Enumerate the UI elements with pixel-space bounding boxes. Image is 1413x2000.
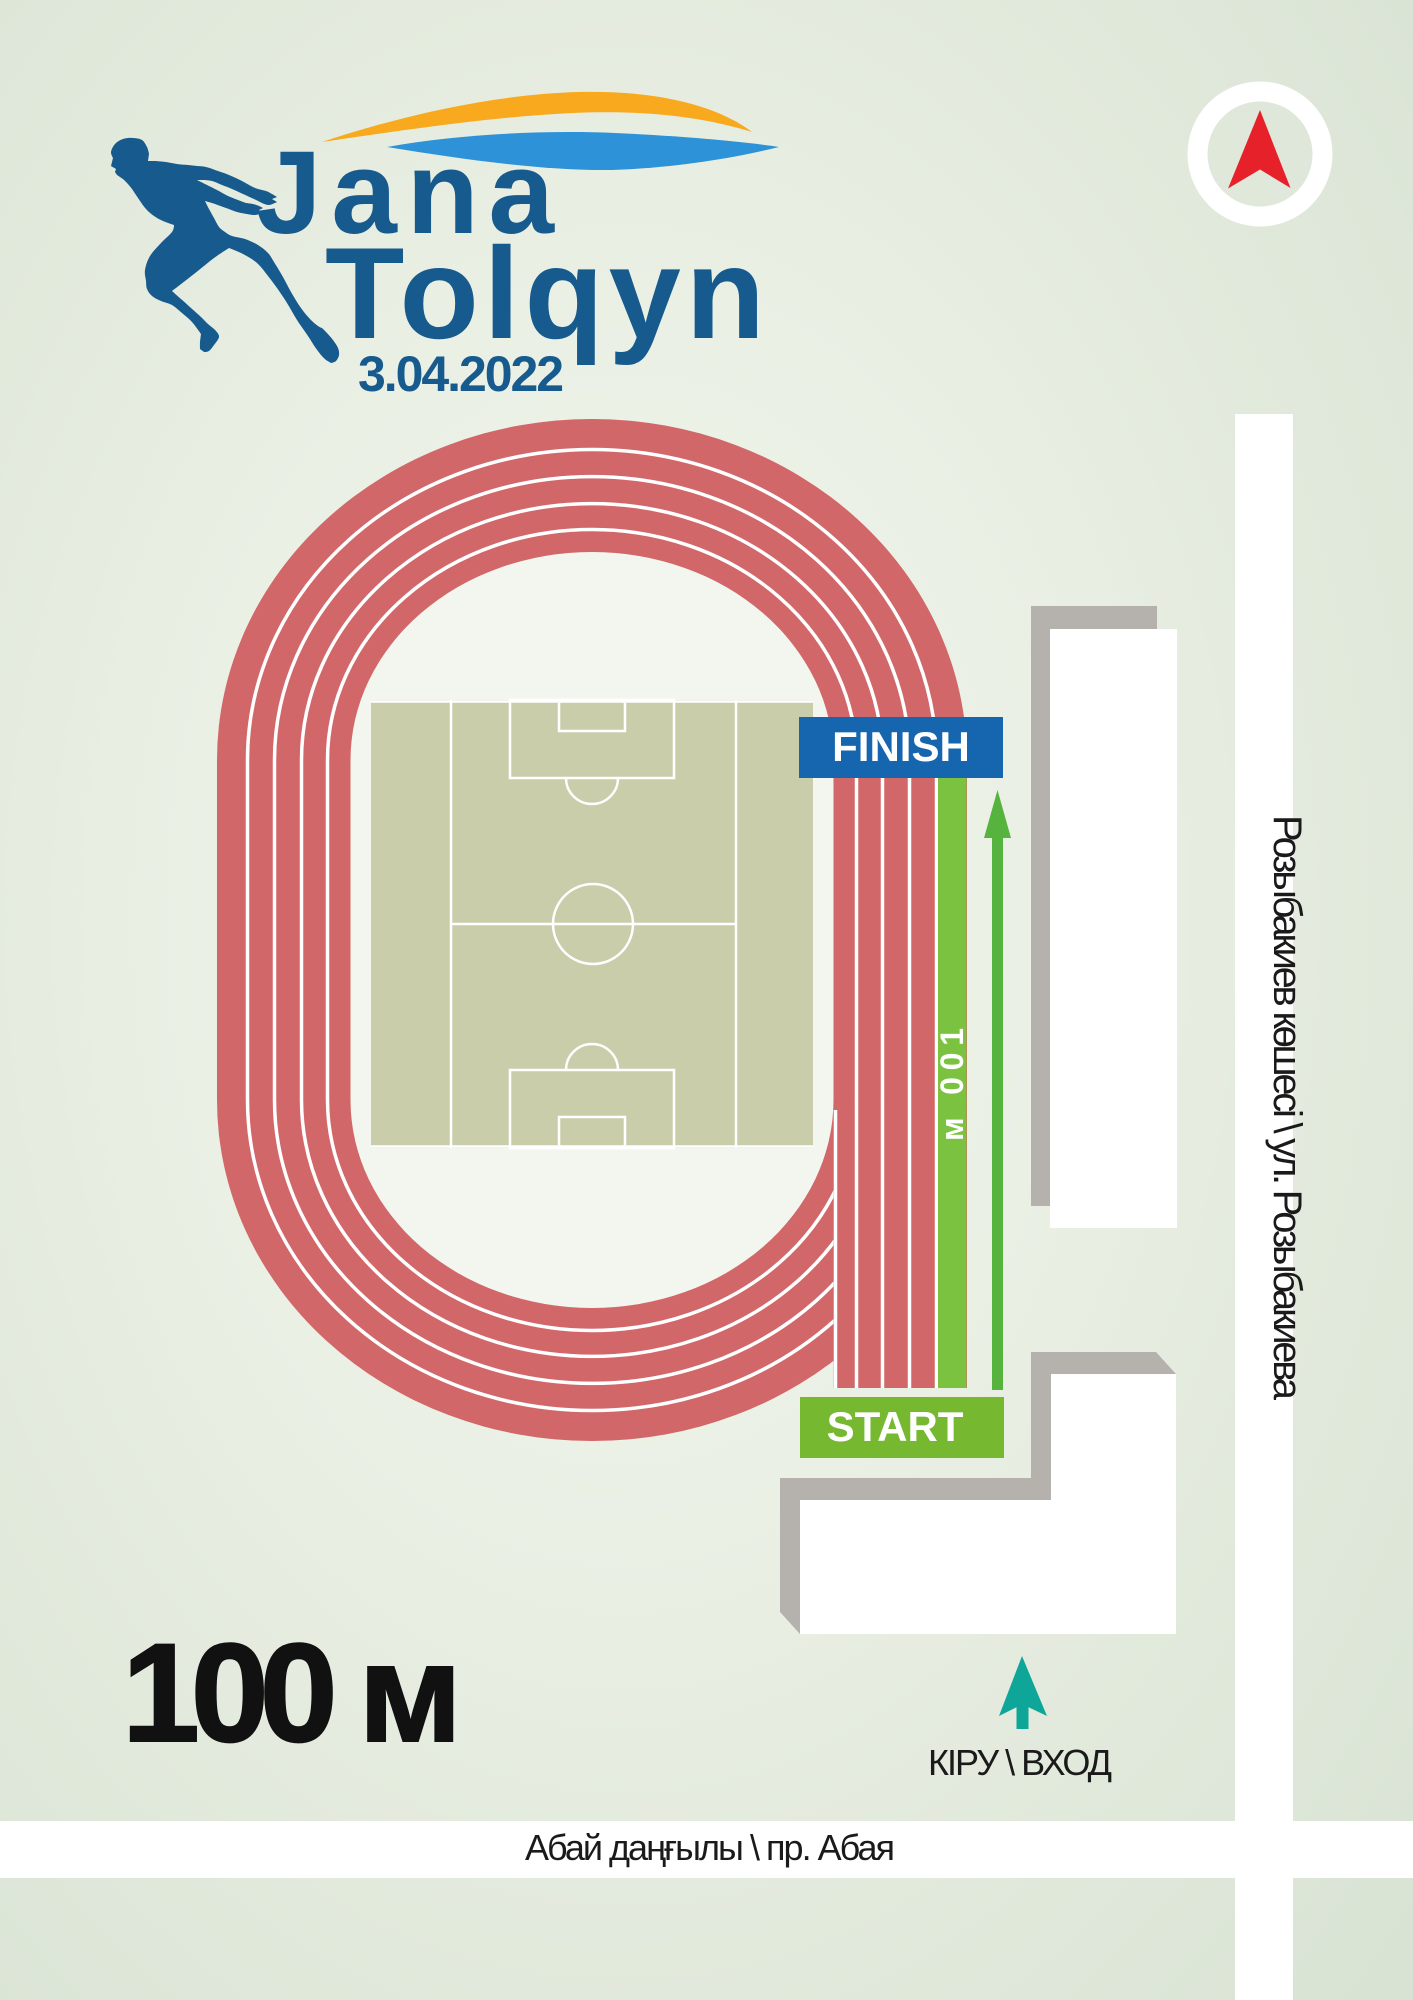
svg-text:100 м: 100 м [122, 1614, 462, 1771]
svg-text:Розыбакиев көшесі \ ул. Розыба: Розыбакиев көшесі \ ул. Розыбакиева [1265, 815, 1309, 1401]
svg-text:КІРУ \ ВХОД: КІРУ \ ВХОД [928, 1742, 1112, 1783]
svg-text:Абай даңғылы \ пр. Абая: Абай даңғылы \ пр. Абая [525, 1827, 895, 1868]
svg-text:FINISH: FINISH [832, 723, 970, 770]
svg-text:Tolqyn: Tolqyn [325, 220, 765, 366]
svg-text:м 001: м 001 [934, 1028, 970, 1141]
svg-text:3.04.2022: 3.04.2022 [358, 346, 564, 402]
svg-text:START: START [827, 1403, 964, 1450]
